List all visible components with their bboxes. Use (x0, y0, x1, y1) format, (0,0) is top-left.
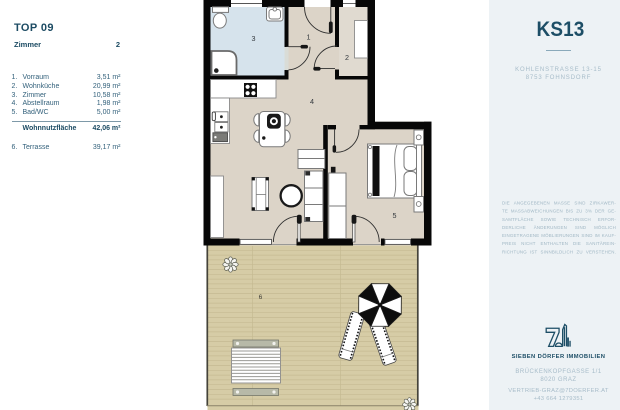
svg-text:5: 5 (393, 211, 397, 220)
svg-text:4: 4 (310, 97, 314, 106)
svg-text:6: 6 (259, 294, 263, 301)
svg-text:2: 2 (345, 53, 349, 62)
svg-text:3: 3 (252, 34, 256, 43)
svg-text:1: 1 (307, 33, 311, 42)
